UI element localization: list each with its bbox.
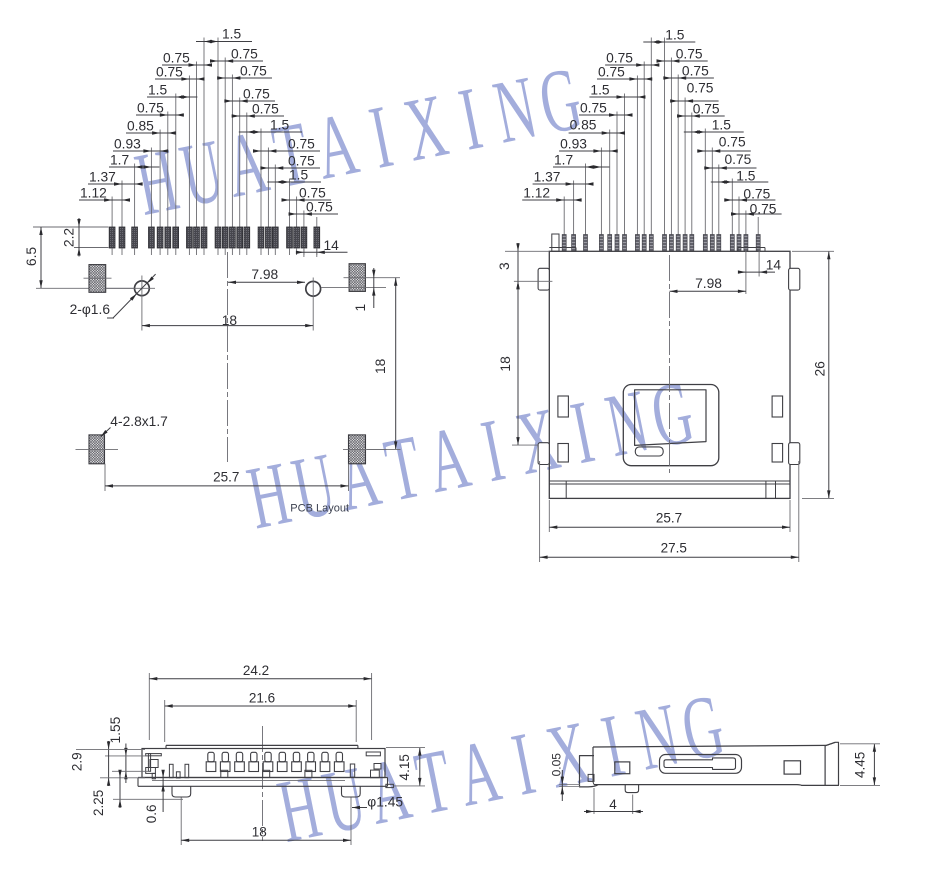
svg-text:0.93: 0.93	[114, 137, 141, 152]
svg-text:6.5: 6.5	[24, 247, 39, 267]
svg-text:0.75: 0.75	[580, 101, 607, 116]
svg-text:1.5: 1.5	[590, 83, 610, 98]
svg-text:0.75: 0.75	[252, 102, 279, 117]
svg-text:7.98: 7.98	[251, 267, 278, 282]
svg-text:1.55: 1.55	[108, 716, 123, 743]
svg-text:1: 1	[353, 304, 368, 312]
svg-text:18: 18	[222, 313, 238, 328]
svg-text:0.85: 0.85	[127, 119, 154, 134]
svg-text:0.75: 0.75	[682, 64, 709, 79]
svg-text:0.75: 0.75	[137, 101, 164, 116]
svg-text:0.75: 0.75	[676, 47, 703, 62]
svg-text:PCB Layout: PCB Layout	[290, 503, 349, 515]
svg-text:1.12: 1.12	[80, 186, 107, 201]
svg-text:0.75: 0.75	[231, 47, 258, 62]
svg-text:27.5: 27.5	[661, 541, 687, 556]
svg-text:0.93: 0.93	[560, 137, 587, 152]
svg-text:4: 4	[609, 797, 617, 812]
svg-text:18: 18	[498, 356, 513, 372]
svg-text:26: 26	[813, 361, 828, 377]
svg-text:24.2: 24.2	[243, 663, 269, 678]
svg-text:0.75: 0.75	[243, 87, 270, 102]
svg-text:4.15: 4.15	[397, 754, 412, 780]
svg-text:0.75: 0.75	[306, 200, 333, 215]
svg-text:0.75: 0.75	[743, 187, 770, 202]
svg-text:0.75: 0.75	[598, 65, 625, 80]
svg-text:1.5: 1.5	[736, 169, 756, 184]
svg-text:2-φ1.6: 2-φ1.6	[70, 302, 111, 317]
svg-text:14: 14	[766, 258, 782, 273]
svg-text:0.75: 0.75	[606, 51, 633, 66]
svg-text:φ1.45: φ1.45	[367, 795, 403, 810]
svg-text:0.75: 0.75	[687, 81, 714, 96]
svg-text:1.5: 1.5	[148, 83, 168, 98]
svg-text:1.5: 1.5	[270, 118, 290, 133]
svg-text:1.7: 1.7	[110, 153, 129, 168]
svg-text:2.2: 2.2	[62, 228, 77, 247]
svg-text:0.75: 0.75	[693, 102, 720, 117]
svg-text:0.75: 0.75	[725, 152, 752, 167]
svg-text:4-2.8x1.7: 4-2.8x1.7	[110, 414, 168, 429]
svg-text:1.37: 1.37	[534, 170, 561, 185]
svg-text:0.75: 0.75	[719, 135, 746, 150]
svg-text:25.7: 25.7	[656, 511, 682, 526]
svg-text:0.75: 0.75	[156, 65, 183, 80]
svg-text:0.6: 0.6	[144, 805, 159, 824]
svg-text:0.05: 0.05	[550, 753, 564, 777]
svg-text:1.12: 1.12	[523, 186, 550, 201]
svg-text:1.37: 1.37	[89, 170, 116, 185]
svg-text:0.75: 0.75	[163, 51, 190, 66]
svg-text:18: 18	[252, 825, 267, 840]
svg-text:3: 3	[497, 262, 512, 270]
svg-text:0.75: 0.75	[299, 186, 326, 201]
svg-text:1.7: 1.7	[554, 153, 573, 168]
svg-text:1.5: 1.5	[289, 168, 309, 183]
svg-text:14: 14	[324, 238, 340, 253]
svg-text:7.98: 7.98	[695, 276, 722, 291]
svg-text:1.5: 1.5	[222, 27, 242, 42]
svg-text:0.85: 0.85	[570, 118, 597, 133]
svg-text:0.75: 0.75	[288, 154, 315, 169]
svg-text:4.45: 4.45	[853, 752, 868, 778]
svg-text:1.5: 1.5	[665, 28, 685, 43]
svg-text:25.7: 25.7	[213, 470, 239, 485]
svg-text:0.75: 0.75	[288, 137, 315, 152]
svg-text:0.75: 0.75	[240, 64, 267, 79]
svg-text:1.5: 1.5	[712, 118, 732, 133]
svg-text:2.9: 2.9	[70, 752, 85, 771]
svg-text:21.6: 21.6	[249, 691, 275, 706]
svg-text:2.25: 2.25	[91, 790, 106, 816]
svg-text:18: 18	[373, 358, 388, 374]
svg-text:0.75: 0.75	[750, 202, 777, 217]
